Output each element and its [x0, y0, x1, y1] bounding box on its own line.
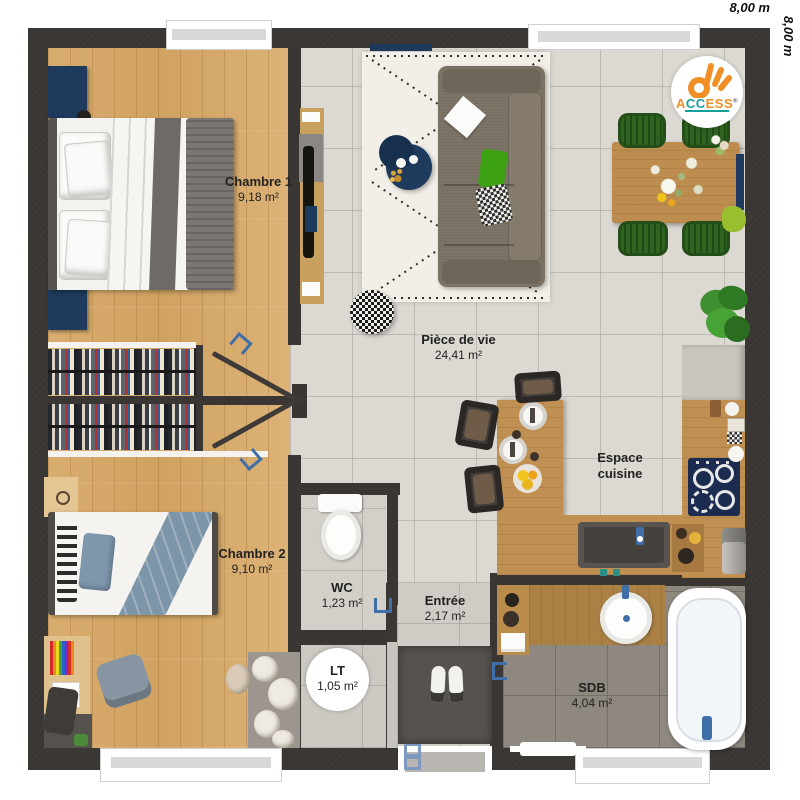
fruit-bowl [513, 464, 542, 493]
access-logo: ACCESS® [671, 56, 743, 128]
window-glass [538, 31, 689, 42]
place-setting [499, 436, 527, 464]
logo-wordmark: ACCESS® [671, 96, 743, 111]
sofa-armrest [442, 69, 541, 93]
faucet-dot [637, 536, 643, 542]
teddy-bear [226, 664, 250, 694]
sofa-armrest [442, 260, 541, 284]
jar [689, 532, 701, 544]
sdb-door-handle-icon [492, 662, 507, 680]
nightstand [47, 66, 87, 118]
pillow [64, 218, 114, 277]
burner-icon [715, 464, 734, 483]
window-sdb [575, 748, 710, 784]
headboard [48, 118, 57, 290]
window-glass [172, 29, 265, 40]
pillow [64, 140, 115, 198]
teddy-bear [252, 656, 278, 682]
pantry-item [710, 400, 721, 417]
cup [409, 155, 418, 164]
cutlery-icon [530, 408, 535, 423]
wardrobe-shelf [48, 451, 268, 457]
wardrobe-rack [48, 349, 196, 395]
pantry-item [725, 402, 739, 416]
towel-stack [501, 633, 525, 649]
window-glass [583, 757, 702, 768]
burner-icon [691, 490, 714, 513]
towel-bench [520, 742, 576, 756]
toy [74, 734, 88, 746]
window-glass [111, 757, 271, 768]
teddy-bear [272, 730, 294, 748]
front-door-handle-icon [404, 756, 421, 770]
chair-seat [464, 408, 491, 441]
place-setting [519, 402, 547, 430]
sofa [438, 66, 545, 287]
blue-pillow [78, 532, 116, 591]
drain-icon [623, 615, 630, 622]
window-chambre1 [166, 20, 272, 50]
headboard [48, 512, 55, 615]
wall-wc-bottom [288, 630, 390, 642]
desk-decor-icon [56, 491, 70, 505]
dimension-right: 8,00 m [780, 16, 796, 96]
wardrobe-rack [48, 404, 196, 450]
room-label-chambre2: Chambre 2 9,10 m² [192, 546, 312, 577]
room-label-lt: LT 1,05 m² [306, 663, 369, 694]
window-living [528, 24, 700, 50]
dining-chair [618, 113, 666, 148]
cabinet-item [505, 593, 519, 607]
pantry-item [727, 418, 745, 432]
small-plant [722, 206, 746, 232]
wall-wc-right [387, 483, 398, 605]
sofa-seam [444, 244, 514, 246]
desk-chair [43, 686, 79, 736]
cup [512, 430, 521, 439]
cutlery-icon [510, 442, 515, 457]
flower-centerpiece [642, 150, 708, 216]
colored-pencils [50, 641, 74, 675]
ok-hand-icon [671, 58, 743, 98]
console-decor [302, 112, 320, 122]
small-desk [44, 477, 78, 517]
faucet-icon [622, 585, 629, 599]
kitchen-sink [578, 522, 670, 568]
open-book [444, 96, 486, 138]
front-door-handle-icon [404, 743, 421, 757]
window-planter [370, 44, 432, 51]
clothes-rail [48, 370, 196, 373]
room-label-wc: WC 1,23 m² [312, 580, 372, 611]
potted-plant [698, 286, 752, 350]
toilet-bowl [321, 510, 361, 560]
wall-lt-right [387, 642, 397, 748]
pantry-item [728, 446, 744, 462]
striped-pillow [57, 522, 77, 602]
bar-chair [464, 464, 505, 514]
window-chambre2 [100, 748, 282, 782]
jar [676, 528, 687, 539]
sink-basin [584, 527, 664, 563]
bathroom-cabinet [497, 585, 529, 655]
chair-seat [523, 379, 554, 395]
room-label-entree: Entrée 2,17 m² [414, 593, 476, 624]
coffee-machine [722, 528, 746, 574]
pantry-item [727, 432, 742, 444]
sneaker [430, 666, 446, 703]
gold-decor [388, 166, 406, 184]
wardrobe-shelf [48, 342, 196, 348]
cooktop [688, 458, 740, 516]
flower-pot [706, 130, 734, 158]
floor-plan: 8,00 m 8,00 m [0, 0, 800, 800]
bar-chair [454, 399, 499, 451]
wc-door-handle-icon [374, 598, 392, 613]
teddy-bear [268, 678, 298, 710]
jar [678, 548, 694, 564]
burner-icon [693, 468, 714, 489]
houndstooth-pouf [350, 290, 394, 334]
logo-underline [685, 110, 729, 112]
burner-icon [715, 490, 735, 510]
dining-chair [618, 221, 668, 256]
console-decor [302, 282, 320, 296]
chair-seat [472, 473, 495, 505]
cup [530, 452, 539, 461]
cabinet-item [503, 611, 519, 627]
kitchen-decor [613, 569, 620, 576]
room-label-cuisine: Espace cuisine [580, 450, 660, 483]
spice-board [672, 524, 704, 572]
table-runner [736, 154, 744, 210]
console-decor [305, 206, 317, 232]
bar-chair [514, 370, 562, 403]
doormat [398, 646, 492, 744]
bathtub-faucet-icon [702, 716, 712, 740]
kitchen-decor [600, 569, 607, 576]
sofa-backrest [508, 92, 542, 261]
fridge-cabinet [682, 345, 745, 400]
registered-mark: ® [733, 99, 738, 105]
room-label-chambre1: Chambre 1 9,18 m² [196, 174, 321, 205]
room-label-sdb: SDB 4,04 m² [560, 680, 624, 711]
clothes-rail [48, 425, 196, 428]
dimension-top: 8,00 m [560, 0, 770, 15]
sneaker [448, 666, 464, 703]
room-label-piece-de-vie: Pièce de vie 24,41 m² [396, 332, 521, 363]
